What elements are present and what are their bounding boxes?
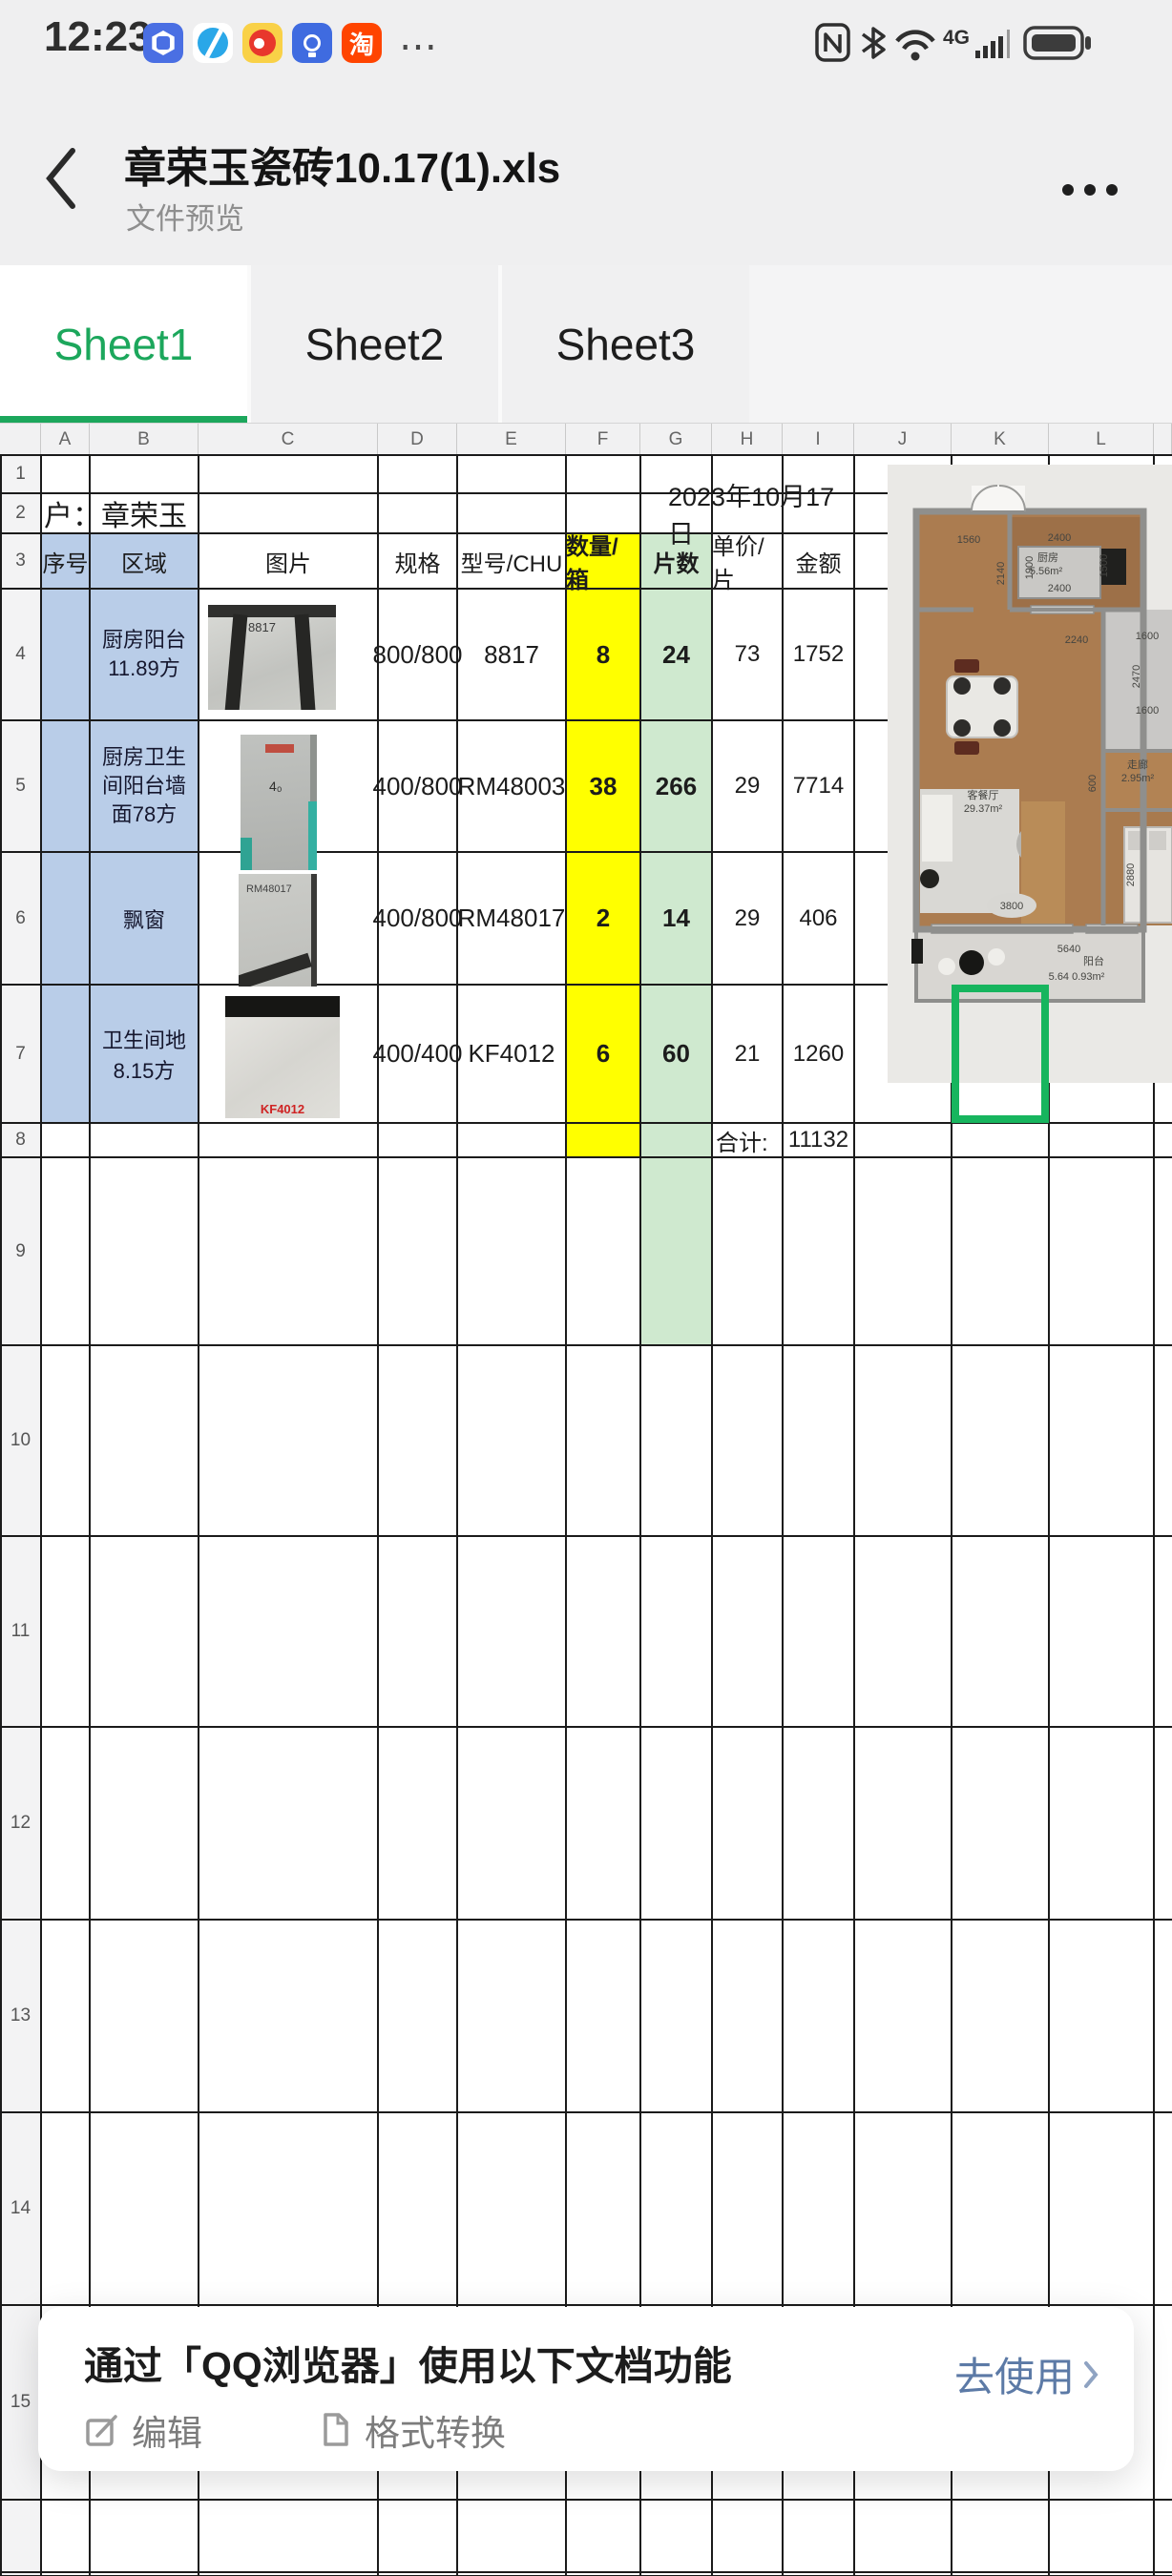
cell-area-r4[interactable]: 厨房阳台11.89方 bbox=[90, 589, 199, 720]
header-unit-price[interactable]: 单价/片 bbox=[712, 533, 783, 589]
cell-pieces-r6[interactable]: 14 bbox=[640, 852, 712, 985]
page-subtitle: 文件预览 bbox=[126, 195, 244, 238]
lightbulb-app-icon bbox=[292, 23, 332, 63]
menu-dot bbox=[1084, 184, 1096, 196]
row-header[interactable]: 3 bbox=[0, 533, 41, 589]
cell-spec-r4[interactable]: 800/800 bbox=[378, 589, 457, 720]
tile-label-r6: RM48017 bbox=[246, 883, 292, 895]
column-header[interactable]: G bbox=[640, 424, 712, 455]
cellular-signal-icon: 4G bbox=[943, 27, 1010, 58]
bluetooth-icon bbox=[863, 29, 884, 57]
svg-text:1600: 1600 bbox=[1136, 631, 1159, 642]
svg-text:29.37m²: 29.37m² bbox=[964, 803, 1003, 815]
svg-text:2240: 2240 bbox=[1065, 634, 1088, 646]
wifi-icon bbox=[897, 32, 933, 61]
header-area[interactable]: 区域 bbox=[90, 533, 199, 589]
file-title: 章荣玉瓷砖10.17(1).xls bbox=[124, 134, 560, 195]
battery-icon bbox=[1025, 28, 1091, 58]
svg-text:阳台: 阳台 bbox=[1083, 954, 1104, 967]
header-amount[interactable]: 金额 bbox=[783, 533, 854, 589]
row-header[interactable]: 1 bbox=[0, 455, 41, 493]
cell-total-value[interactable]: 11132 bbox=[783, 1123, 854, 1157]
cell-unit-r4[interactable]: 73 bbox=[712, 589, 783, 720]
header-spec[interactable]: 规格 bbox=[378, 533, 457, 589]
chevron-right-icon bbox=[1082, 2359, 1099, 2390]
cell-model-r6[interactable]: RM48017 bbox=[457, 852, 566, 985]
banner-title: 通过「QQ浏览器」使用以下文档功能 bbox=[84, 2334, 732, 2391]
cell-boxes-r5[interactable]: 38 bbox=[566, 720, 640, 852]
cell-boxes-r4[interactable]: 8 bbox=[566, 589, 640, 720]
row-header[interactable]: 14 bbox=[0, 2112, 41, 2305]
header-pieces[interactable]: 片数 bbox=[640, 533, 712, 589]
column-header[interactable]: F bbox=[566, 424, 640, 455]
row-header[interactable]: 6 bbox=[0, 852, 41, 985]
column-header[interactable]: D bbox=[378, 424, 457, 455]
hand-app-icon bbox=[143, 23, 183, 63]
header-image[interactable]: 图片 bbox=[199, 533, 378, 589]
column-header[interactable]: C bbox=[199, 424, 378, 455]
column-header[interactable]: L bbox=[1049, 424, 1154, 455]
row-header[interactable]: 7 bbox=[0, 985, 41, 1123]
cell-area-r7[interactable]: 卫生间地8.15方 bbox=[90, 985, 199, 1123]
column-header[interactable]: B bbox=[90, 424, 199, 455]
cell-unit-r6[interactable]: 29 bbox=[712, 852, 783, 985]
cell-area-r6[interactable]: 飘窗 bbox=[90, 852, 199, 985]
status-time: 12:23 bbox=[44, 13, 152, 61]
row-header[interactable]: 10 bbox=[0, 1345, 41, 1536]
cell-pieces-r4[interactable]: 24 bbox=[640, 589, 712, 720]
qq-browser-banner: 通过「QQ浏览器」使用以下文档功能 去使用 编辑 格式转换 bbox=[38, 2307, 1134, 2471]
phone-screen: 12:23 淘 ⋯ bbox=[0, 0, 1172, 2576]
column-header[interactable]: K bbox=[952, 424, 1049, 455]
cell-spec-r7[interactable]: 400/400 bbox=[378, 985, 457, 1123]
cell-amount-r6[interactable]: 406 bbox=[783, 852, 854, 985]
tab-sheet1[interactable]: Sheet1 bbox=[0, 265, 247, 424]
menu-dot bbox=[1062, 184, 1074, 196]
format-convert-label: 格式转换 bbox=[365, 2404, 506, 2456]
banner-cta-label: 去使用 bbox=[954, 2345, 1075, 2403]
edit-action-label: 编辑 bbox=[132, 2404, 202, 2456]
header-seq[interactable]: 序号 bbox=[41, 533, 90, 589]
cell-unit-r7[interactable]: 21 bbox=[712, 985, 783, 1123]
svg-text:2140: 2140 bbox=[995, 562, 1007, 585]
row-header[interactable]: 11 bbox=[0, 1536, 41, 1727]
column-header[interactable]: E bbox=[457, 424, 566, 455]
status-more-icon: ⋯ bbox=[399, 25, 437, 69]
edit-action-button[interactable]: 编辑 bbox=[84, 2404, 202, 2456]
svg-text:5.64 0.93m²: 5.64 0.93m² bbox=[1049, 971, 1105, 983]
svg-text:5640: 5640 bbox=[1057, 944, 1080, 955]
svg-text:走廊: 走廊 bbox=[1127, 758, 1148, 771]
svg-text:2400: 2400 bbox=[1048, 583, 1071, 594]
cell-pieces-r5[interactable]: 266 bbox=[640, 720, 712, 852]
nfc-icon bbox=[817, 25, 848, 60]
svg-text:1560: 1560 bbox=[957, 534, 980, 546]
tab-bar-filler bbox=[749, 265, 1172, 424]
column-header[interactable]: J bbox=[854, 424, 952, 455]
row-header[interactable]: 2 bbox=[0, 493, 41, 533]
row-header[interactable]: 4 bbox=[0, 589, 41, 720]
cell-amount-r4[interactable]: 1752 bbox=[783, 589, 854, 720]
svg-text:2.95m²: 2.95m² bbox=[1121, 773, 1155, 784]
cell-total-label[interactable]: 合计: bbox=[716, 1123, 783, 1157]
cell-spec-r5[interactable]: 400/800 bbox=[378, 720, 457, 852]
edit-icon bbox=[84, 2412, 120, 2448]
cell-amount-r7[interactable]: 1260 bbox=[783, 985, 854, 1123]
cell-unit-r5[interactable]: 29 bbox=[712, 720, 783, 852]
svg-text:600: 600 bbox=[1087, 775, 1099, 792]
svg-text:5.56m²: 5.56m² bbox=[1030, 566, 1063, 577]
row-header[interactable]: 15 bbox=[0, 2305, 41, 2500]
column-header[interactable] bbox=[1154, 424, 1172, 455]
cell-amount-r5[interactable]: 7714 bbox=[783, 720, 854, 852]
svg-text:客餐厅: 客餐厅 bbox=[968, 788, 999, 801]
selected-cell-outline[interactable] bbox=[952, 985, 1049, 1123]
row-header[interactable]: 5 bbox=[0, 720, 41, 852]
column-header[interactable]: H bbox=[712, 424, 783, 455]
tile-photo-r5: 4₀ bbox=[241, 735, 317, 870]
row-header[interactable]: 9 bbox=[0, 1157, 41, 1345]
format-convert-action-button[interactable]: 格式转换 bbox=[317, 2404, 506, 2456]
cell-customer[interactable]: 户：章荣玉 bbox=[44, 493, 445, 533]
cell-spec-r6[interactable]: 400/800 bbox=[378, 852, 457, 985]
cell-boxes-r6[interactable]: 2 bbox=[566, 852, 640, 985]
header-model[interactable]: 型号/CHU bbox=[457, 533, 566, 589]
globe-app-icon bbox=[193, 23, 233, 63]
cell-model-r7[interactable]: KF4012 bbox=[457, 985, 566, 1123]
row-header[interactable]: 13 bbox=[0, 1920, 41, 2112]
tile-label-r7: KF4012 bbox=[225, 1102, 340, 1116]
svg-text:厨房: 厨房 bbox=[1037, 551, 1058, 564]
menu-dot bbox=[1106, 184, 1118, 196]
column-header[interactable]: A bbox=[41, 424, 90, 455]
cell-model-r5[interactable]: RM48003 bbox=[457, 720, 566, 852]
cell-area-r5[interactable]: 厨房卫生间阳台墙面78方 bbox=[90, 720, 199, 852]
row-header[interactable]: 8 bbox=[0, 1123, 41, 1157]
tile-photo-r4: 8817 bbox=[208, 605, 336, 710]
banner-cta-button[interactable]: 去使用 bbox=[954, 2345, 1099, 2403]
tab-sheet3[interactable]: Sheet3 bbox=[502, 265, 749, 424]
taobao-app-icon: 淘 bbox=[342, 23, 382, 63]
cell-boxes-r7[interactable]: 6 bbox=[566, 985, 640, 1123]
header-boxes[interactable]: 数量/箱 bbox=[566, 533, 640, 589]
svg-text:1500: 1500 bbox=[1099, 554, 1110, 577]
weibo-app-icon bbox=[242, 23, 283, 63]
tab-sheet2[interactable]: Sheet2 bbox=[251, 265, 498, 424]
document-icon bbox=[317, 2411, 353, 2449]
tile-photo-r7: KF4012 bbox=[225, 996, 340, 1118]
svg-text:2470: 2470 bbox=[1131, 665, 1142, 688]
svg-text:4G: 4G bbox=[943, 27, 970, 49]
tile-photo-r6: RM48017 bbox=[239, 874, 317, 987]
status-right-icons: 4G bbox=[813, 16, 1128, 70]
svg-text:1600: 1600 bbox=[1136, 705, 1159, 717]
svg-text:2400: 2400 bbox=[1048, 532, 1071, 544]
cell-model-r4[interactable]: 8817 bbox=[457, 589, 566, 720]
svg-text:2880: 2880 bbox=[1125, 863, 1137, 886]
svg-text:3800: 3800 bbox=[1000, 901, 1023, 912]
sheet-tab-bar: Sheet1 Sheet2 Sheet3 bbox=[0, 265, 1172, 424]
tile-label-r4: 8817 bbox=[248, 620, 276, 634]
cell-pieces-r7[interactable]: 60 bbox=[640, 985, 712, 1123]
column-header[interactable]: I bbox=[783, 424, 854, 455]
row-header[interactable]: 12 bbox=[0, 1727, 41, 1920]
back-button[interactable] bbox=[40, 143, 82, 214]
